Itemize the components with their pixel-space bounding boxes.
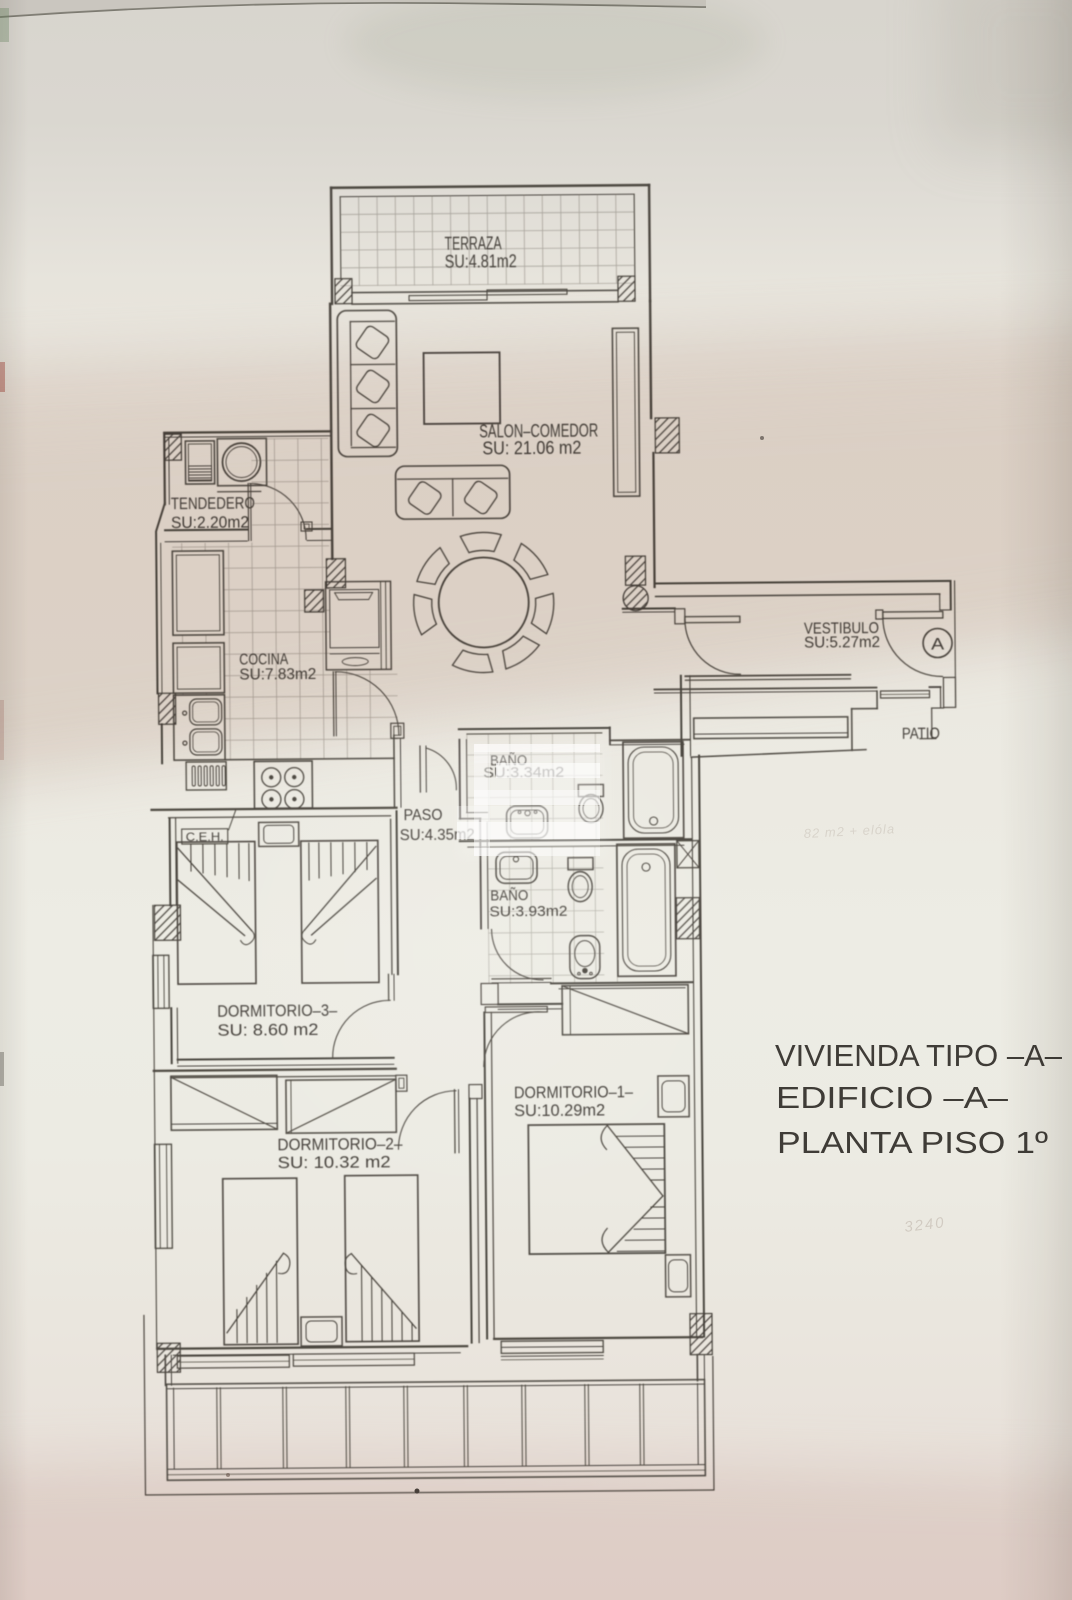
svg-text:EDIFICIO –A–: EDIFICIO –A– — [776, 1080, 1009, 1115]
svg-text:SU: 8.60 m2: SU: 8.60 m2 — [217, 1020, 318, 1040]
svg-text:DORMITORIO–1–: DORMITORIO–1– — [514, 1082, 634, 1102]
svg-text:DORMITORIO–3–: DORMITORIO–3– — [217, 1001, 338, 1021]
svg-text:SU: 21.06 m2: SU: 21.06 m2 — [482, 438, 581, 459]
svg-text:82 m2 + elóla: 82 m2 + elóla — [803, 821, 895, 841]
svg-text:TENDEDERO: TENDEDERO — [171, 493, 255, 513]
svg-text:BAÑO: BAÑO — [490, 887, 528, 904]
svg-text:3240: 3240 — [903, 1214, 946, 1236]
svg-text:SU:7.83m2: SU:7.83m2 — [239, 666, 316, 684]
svg-text:SU:3.93m2: SU:3.93m2 — [489, 903, 567, 921]
svg-text:A: A — [931, 634, 945, 653]
svg-text:SU: 10.32 m2: SU: 10.32 m2 — [278, 1152, 391, 1172]
svg-text:SU:5.27m2: SU:5.27m2 — [804, 634, 880, 652]
svg-text:PASO: PASO — [403, 807, 442, 824]
svg-text:VIVIENDA TIPO –A–: VIVIENDA TIPO –A– — [775, 1038, 1063, 1073]
svg-text:DORMITORIO–2–: DORMITORIO–2– — [277, 1134, 403, 1154]
svg-text:PATIO: PATIO — [902, 726, 940, 743]
svg-text:SU:4.81m2: SU:4.81m2 — [445, 251, 517, 272]
svg-text:PLANTA PISO 1º: PLANTA PISO 1º — [777, 1125, 1048, 1160]
svg-text:SU:10.29m2: SU:10.29m2 — [514, 1100, 605, 1120]
